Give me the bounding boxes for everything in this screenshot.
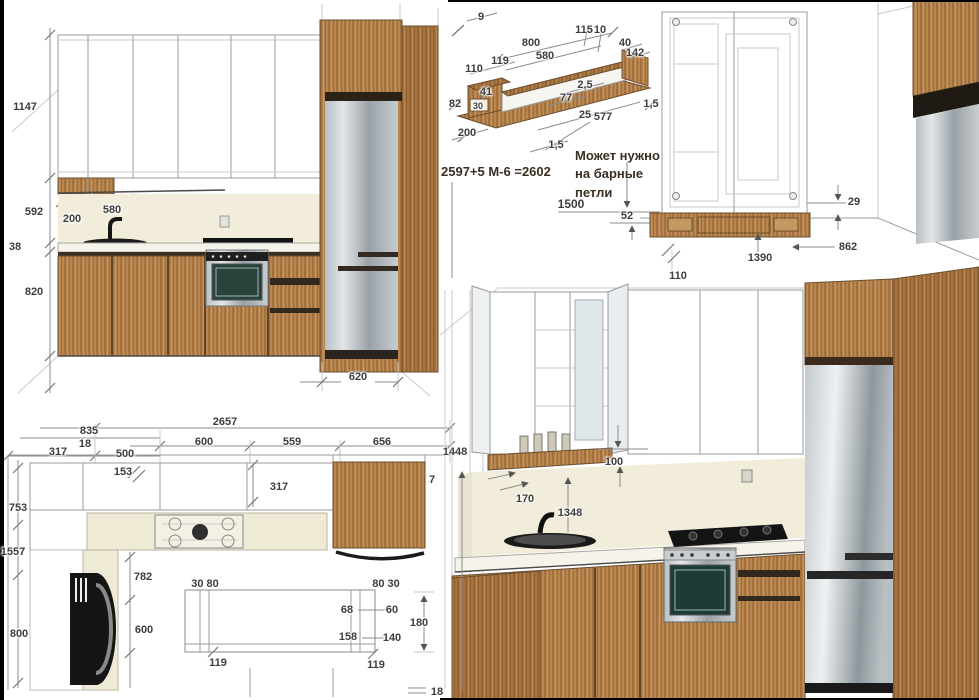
hinge-note-line: на барные xyxy=(575,165,660,183)
wall-cabinets xyxy=(58,35,320,178)
backsplash-side xyxy=(458,472,472,562)
base-cabinets xyxy=(58,256,320,356)
plan-hob xyxy=(155,515,243,548)
outlet xyxy=(220,216,229,227)
fridge-column xyxy=(320,20,438,372)
plan-view-panel xyxy=(3,420,462,697)
drawing-canvas xyxy=(0,0,979,700)
perspective-view-panel xyxy=(440,267,979,700)
plan-fridge-cabinet xyxy=(333,462,425,548)
fridge-column-3d xyxy=(805,267,979,700)
open-cabinet-drawing xyxy=(662,12,807,213)
plan-wall-cabinets xyxy=(30,463,333,510)
oven-3d xyxy=(664,548,736,622)
hinge-note-line: Может нужно xyxy=(575,147,660,165)
countertop xyxy=(58,243,320,252)
oven xyxy=(206,250,268,306)
open-wall-cabinet xyxy=(472,284,628,454)
fridge-column-fragment xyxy=(913,0,979,244)
backsplash xyxy=(58,194,320,243)
hinge-note-line: петли xyxy=(575,184,660,202)
outlet-3d xyxy=(742,470,752,482)
hinge-note: Может нужно на барные петли xyxy=(575,147,660,202)
plinth xyxy=(650,213,810,237)
shelf-detail-panel xyxy=(449,13,660,278)
bar-table-detail xyxy=(185,590,434,659)
fridge-front xyxy=(325,101,398,353)
wall-cabinets-3d xyxy=(628,290,803,454)
front-elevation-panel xyxy=(12,4,438,396)
formula-note: 2597+5 М-6 =2602 xyxy=(441,163,551,181)
shelf-right-block xyxy=(622,50,648,86)
plan-fridge-top-view xyxy=(70,573,116,685)
kitchen-technical-drawing: 2597+5 М-6 =2602 Может нужно на барные п… xyxy=(0,0,979,700)
base-cabinets-3d xyxy=(452,554,805,700)
cabinet-detail-panel xyxy=(640,0,979,270)
fridge-front-3d xyxy=(805,365,893,685)
